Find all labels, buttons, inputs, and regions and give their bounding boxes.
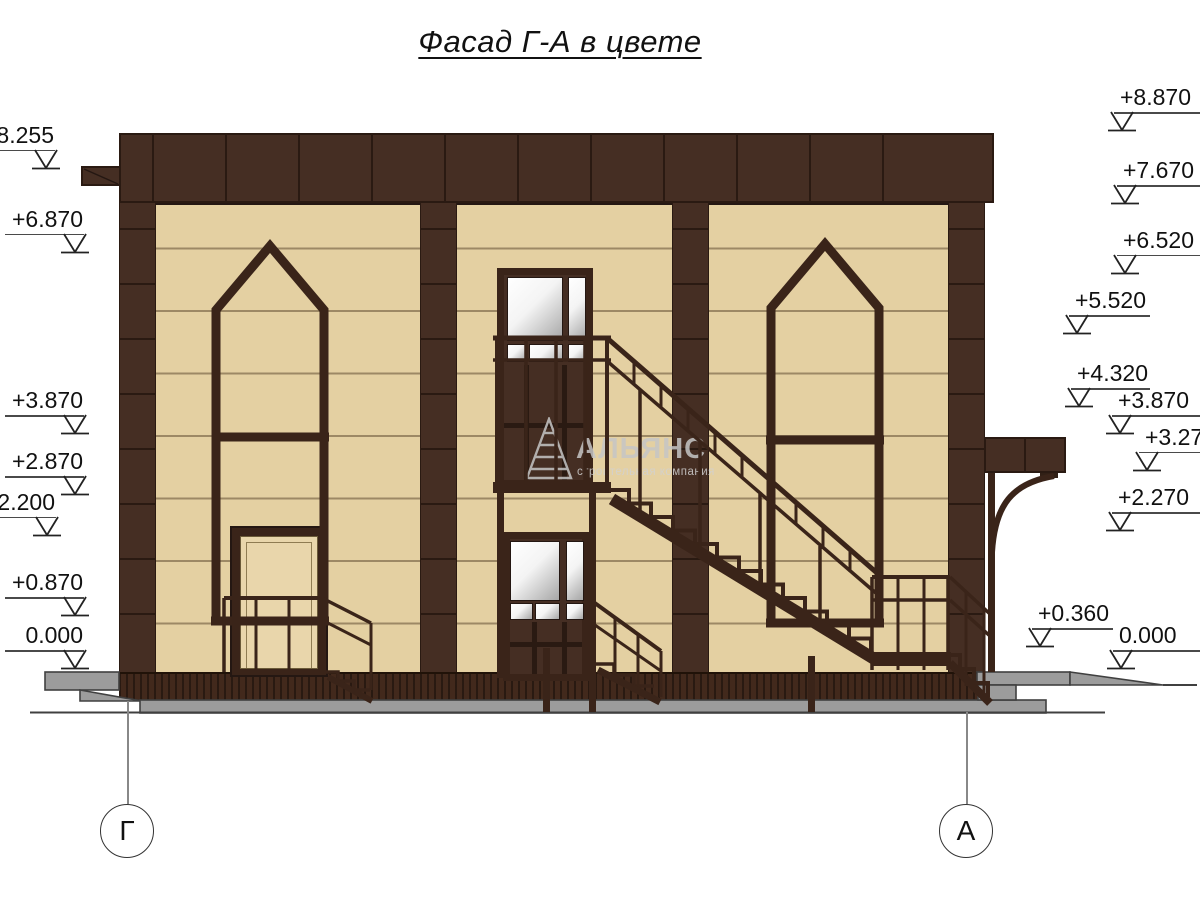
elevation-arrow-icon bbox=[1106, 649, 1136, 671]
facade-drawing-sheet: { "title": "Фасад Г-А в цвете", "drawing… bbox=[0, 0, 1200, 900]
elevation-arrow-icon bbox=[1132, 451, 1162, 473]
left-arch-frame bbox=[211, 246, 329, 621]
elevation-arrow-icon bbox=[31, 149, 61, 171]
axis-bubble-right: А bbox=[939, 804, 993, 858]
axis-line-right bbox=[966, 712, 968, 804]
elevation-arrow-icon bbox=[1025, 627, 1055, 649]
elevation-value: +7.670 bbox=[1123, 158, 1194, 183]
elevation-value: +0.870 bbox=[0, 570, 83, 595]
elevation-arrow-icon bbox=[1105, 511, 1135, 533]
page-title: Фасад Г-А в цвете bbox=[330, 24, 790, 60]
elevation-arrow-icon bbox=[1105, 414, 1135, 436]
elevation-value: +2.870 bbox=[0, 449, 83, 474]
elevation-value: +8.870 bbox=[1120, 85, 1191, 110]
axis-label: Г bbox=[119, 815, 134, 846]
elevation-value: 0.000 bbox=[1119, 623, 1177, 648]
elevation-arrow-icon bbox=[60, 475, 90, 497]
elevation-arrow-icon bbox=[60, 233, 90, 255]
elevation-value: +6.870 bbox=[0, 207, 83, 232]
facade-linework bbox=[0, 0, 1200, 900]
elevation-value: +3.270 bbox=[1145, 425, 1200, 450]
elevation-value: +3.870 bbox=[1118, 388, 1189, 413]
elevation-value: +0.360 bbox=[1038, 601, 1109, 626]
elevation-arrow-icon bbox=[60, 596, 90, 618]
elevation-arrow-icon bbox=[1064, 387, 1094, 409]
axis-line-left bbox=[127, 701, 129, 804]
elevation-arrow-icon bbox=[32, 516, 62, 538]
ledge-diagonal bbox=[84, 169, 118, 184]
elevation-value: 0.000 bbox=[0, 623, 83, 648]
elevation-arrow-icon bbox=[60, 649, 90, 671]
elevation-value: +2.270 bbox=[1118, 485, 1189, 510]
left-porch-railing bbox=[224, 598, 372, 701]
elevation-arrow-icon bbox=[1062, 314, 1092, 336]
elevation-value: +3.870 bbox=[0, 388, 83, 413]
elevation-arrow-icon bbox=[1110, 184, 1140, 206]
elevation-value: +2.200 bbox=[0, 490, 55, 515]
main-staircase bbox=[607, 490, 990, 703]
elevation-value: +4.320 bbox=[1077, 361, 1148, 386]
elevation-value: +8.255 bbox=[0, 123, 54, 148]
elevation-value: +5.520 bbox=[1075, 288, 1146, 313]
canopy-bracket-arc bbox=[992, 476, 1054, 552]
balcony-railing bbox=[493, 338, 611, 482]
elevation-arrow-icon bbox=[1110, 254, 1140, 276]
elevation-arrow-icon bbox=[60, 414, 90, 436]
entrance-stair bbox=[592, 601, 661, 702]
elevation-value: +6.520 bbox=[1123, 228, 1194, 253]
elevation-arrow-icon bbox=[1107, 111, 1137, 133]
axis-bubble-left: Г bbox=[100, 804, 154, 858]
axis-label: А bbox=[957, 815, 976, 846]
